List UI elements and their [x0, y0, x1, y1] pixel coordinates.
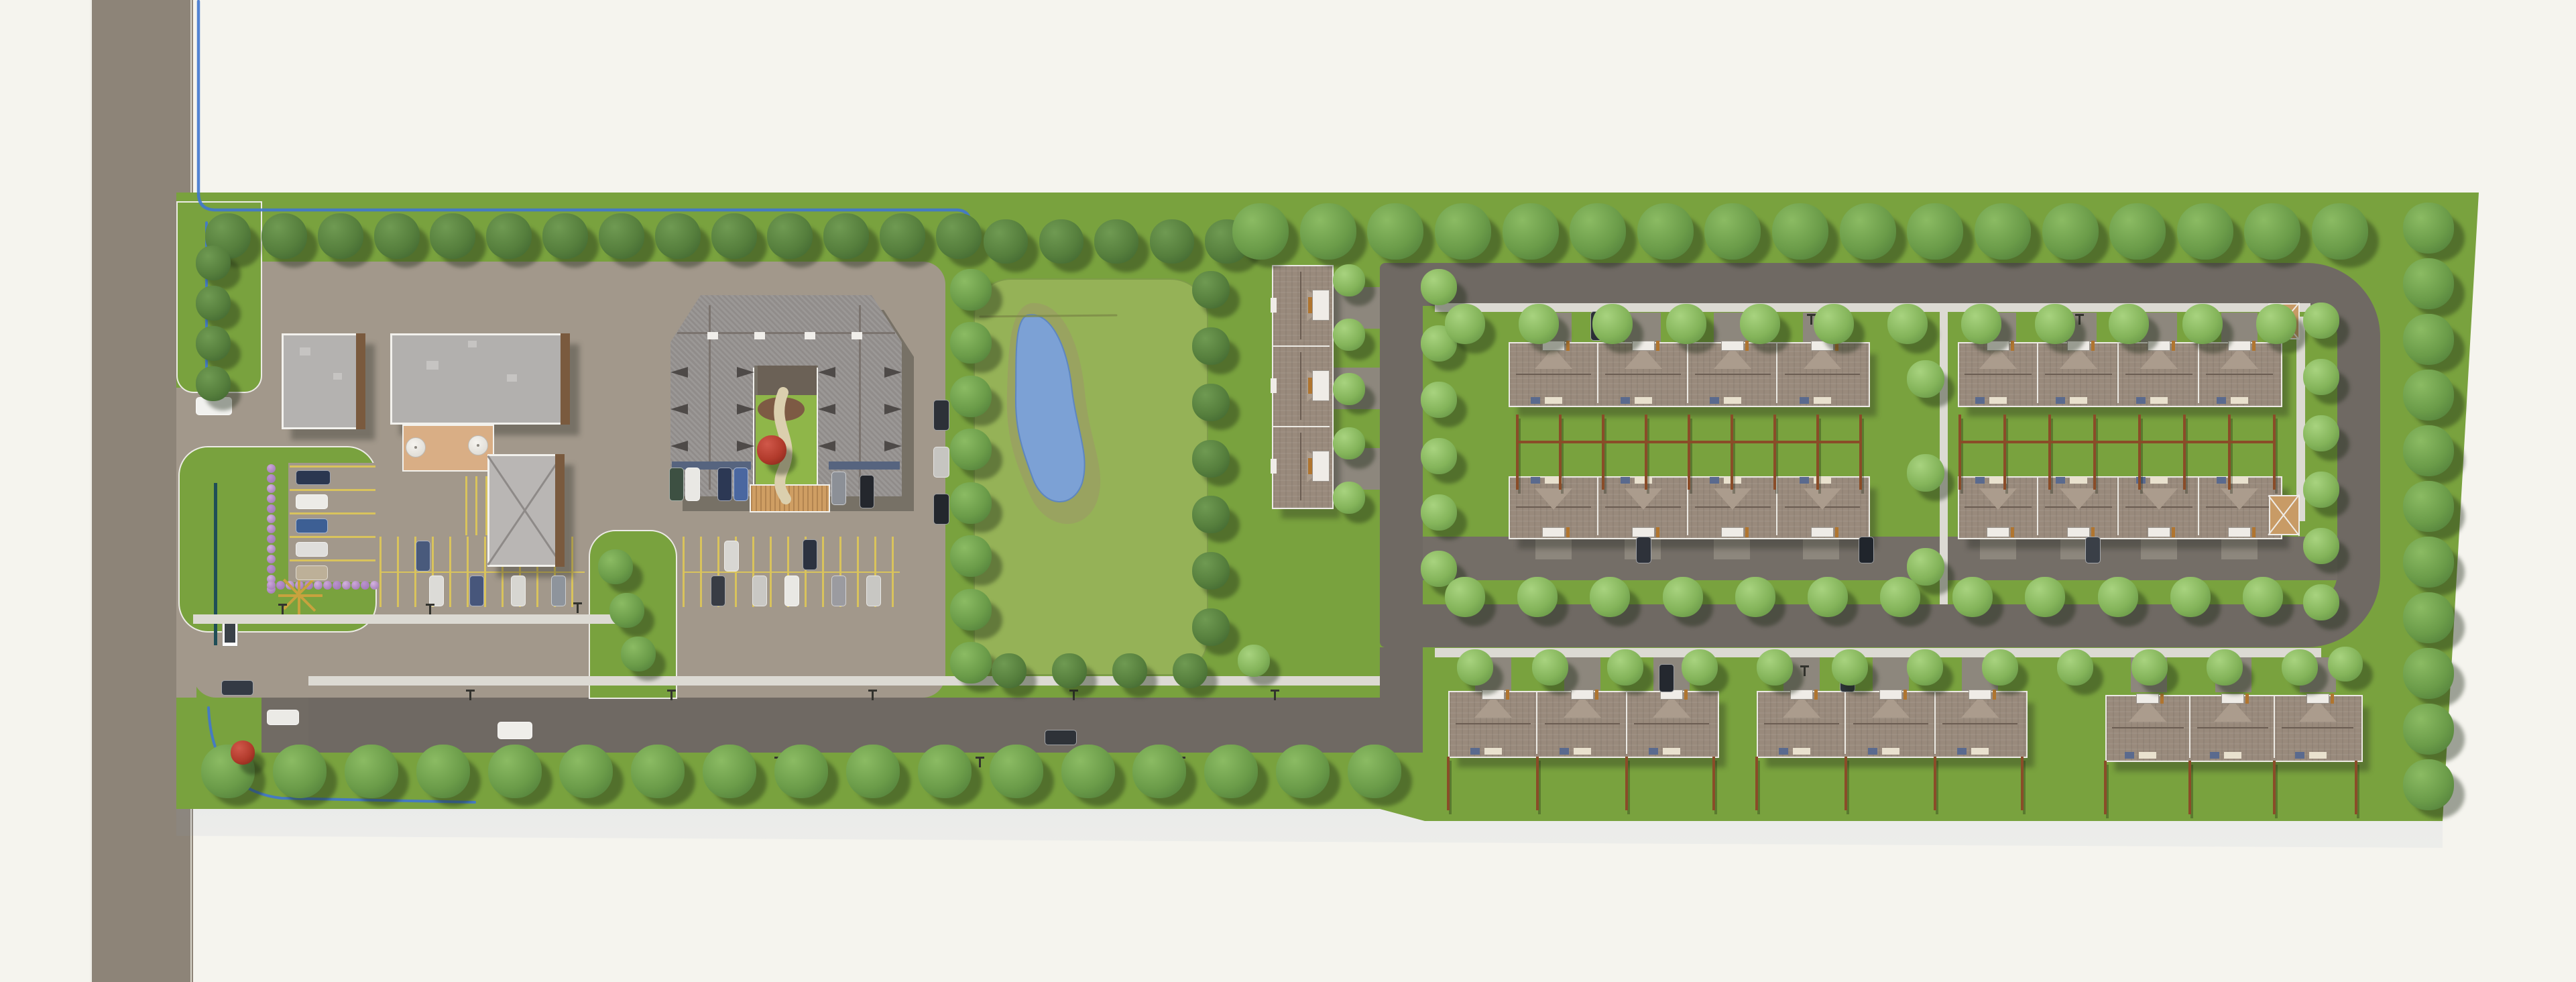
south-stalls-car-b6: [831, 576, 846, 606]
north-boundary-trees-east-tree: [1772, 203, 1828, 260]
south-boundary-trees-tree: [416, 745, 470, 798]
north-boundary-trees-west-tree: [711, 213, 757, 259]
south-street-trees-tree: [1457, 649, 1493, 686]
basin-east-trees-tree: [1192, 496, 1230, 533]
east-boundary-trees-tree: [2403, 592, 2454, 643]
north-boundary-trees-east-tree: [1435, 203, 1491, 260]
south-stalls-car-b4: [752, 576, 767, 606]
east-boundary-trees-tree: [2403, 258, 2454, 309]
entry-red-shrub: [231, 741, 255, 765]
south-stalls-car-b1: [724, 541, 739, 571]
east-loop-road-trees-tree: [2303, 415, 2339, 451]
east-boundary-trees-tree: [2403, 759, 2454, 810]
north-boundary-trees-east-tree: [1300, 203, 1356, 260]
car-windshield: [2086, 537, 2100, 541]
north-boundary-trees-west-tree: [655, 213, 701, 259]
loop-west-road-trees-tree: [1421, 438, 1457, 474]
south-street-trees-tree: [2057, 649, 2093, 686]
north-boundary-trees-west-tree: [880, 213, 925, 259]
south-boundary-trees-tree: [1276, 745, 1330, 798]
car-windshield: [934, 494, 949, 499]
light-pole-arm: [466, 690, 475, 692]
light-pole-arm: [426, 604, 434, 606]
east-parallel-car-2: [933, 447, 949, 478]
lot-peninsula-trees-tree: [609, 593, 644, 628]
north-boundary-trees-east-tree: [1503, 203, 1559, 260]
pond-corner-tree: [1238, 645, 1270, 677]
south-street-trees-tree: [2131, 649, 2168, 686]
north-boundary-trees-west-tree: [261, 213, 307, 259]
basin-west-trees-tree: [950, 322, 992, 364]
basin-south-trees-tree: [1173, 653, 1208, 688]
east-boundary-trees-tree: [2403, 481, 2454, 532]
east-loop-road-trees-tree: [2303, 359, 2339, 395]
car-windshield: [725, 541, 738, 546]
lot-peninsula-trees-tree: [598, 549, 633, 584]
car-windshield: [512, 576, 525, 581]
car-windshield: [470, 576, 483, 581]
west-island-trees-tree: [196, 286, 231, 321]
south-street-trees-tree: [1982, 649, 2018, 686]
island-stall-truck: [296, 470, 331, 485]
north-boundary-trees-mid-tree: [984, 219, 1028, 264]
east-parallel-car-3: [933, 494, 949, 525]
alley-street-trees-tree: [1663, 577, 1703, 617]
courtyard-path-svg: [0, 0, 2576, 982]
south-boundary-trees-tree: [1132, 745, 1186, 798]
car-windshield: [753, 576, 766, 581]
light-pole-arm: [278, 604, 287, 606]
car-windshield: [430, 576, 443, 581]
north-boundary-trees-west-tree: [936, 213, 982, 259]
alley-street-trees-tree: [1590, 577, 1630, 617]
north-boundary-trees-west-tree: [823, 213, 869, 259]
north-boundary-trees-west-tree: [430, 213, 475, 259]
east-loop-road-trees-tree: [2303, 472, 2339, 508]
north-boundary-trees-east-tree: [1570, 203, 1626, 260]
south-stalls-car-b3: [711, 576, 725, 606]
north-street-trees-tree: [2182, 304, 2223, 344]
center-townhome-yard-trees-tree: [1333, 373, 1365, 405]
car-windshield: [718, 468, 731, 474]
clubhouse-front-car-3: [717, 468, 732, 501]
cluster-gap-trees-tree: [1907, 454, 1944, 492]
lot-peninsula-trees-tree: [621, 637, 656, 671]
alley-street-trees-tree: [1880, 577, 1920, 617]
north-street-trees-tree: [2256, 304, 2296, 344]
east-loop-road-trees-tree: [2303, 528, 2339, 564]
east-parallel-car-1: [933, 400, 949, 431]
courtyard-red-maple: [757, 435, 786, 465]
car-on-apron: [267, 710, 299, 725]
south-stalls-car-a1: [416, 541, 430, 571]
south-stalls-car-a3: [469, 576, 484, 606]
center-townhome-yard-trees-tree: [1333, 264, 1365, 296]
loop-west-road-trees-tree: [1421, 494, 1457, 531]
car-windshield: [734, 468, 748, 474]
loop-corner-tree: [2328, 647, 2363, 681]
south-boundary-trees-tree: [559, 745, 613, 798]
alley-street-trees-tree: [2098, 577, 2138, 617]
loop-west-road-trees-tree: [1421, 382, 1457, 418]
alley-street-trees-tree: [2243, 577, 2283, 617]
north-boundary-trees-west-tree: [374, 213, 420, 259]
east-boundary-trees-tree: [2403, 704, 2454, 755]
island-stall-car-4: [296, 542, 328, 557]
east-boundary-trees-tree: [2403, 648, 2454, 699]
cluster-gap-trees-tree: [1907, 360, 1944, 398]
van-on-main-road: [497, 722, 532, 739]
basin-south-trees-tree: [1052, 653, 1087, 688]
south-boundary-trees-tree: [774, 745, 828, 798]
alley-street-trees-tree: [1808, 577, 1848, 617]
car-windshield: [552, 576, 565, 581]
clubhouse-front-car-4: [734, 468, 748, 501]
south-boundary-trees-tree: [1061, 745, 1115, 798]
car-near-entrance: [221, 680, 253, 696]
east-loop-road-trees-tree: [2303, 303, 2339, 339]
north-boundary-trees-east-tree: [1840, 203, 1896, 260]
alley-street-trees-tree: [2025, 577, 2065, 617]
north-boundary-trees-west-tree: [542, 213, 588, 259]
car-windshield: [785, 576, 799, 581]
basin-west-trees-tree: [950, 429, 992, 470]
west-island-trees-tree: [196, 245, 231, 280]
north-street-trees-tree: [1887, 304, 1928, 344]
north-boundary-trees-east-tree: [2042, 203, 2099, 260]
south-street-trees-tree: [2207, 649, 2243, 686]
car-windshield: [1637, 537, 1651, 541]
south-row-driveway-car-1: [1659, 664, 1674, 692]
south-boundary-trees-tree: [846, 745, 900, 798]
south-boundary-trees-tree: [1348, 745, 1401, 798]
car-windshield: [934, 400, 949, 405]
east-boundary-trees-tree: [2403, 203, 2454, 254]
alley-street-trees-tree: [1517, 577, 1558, 617]
north-street-trees-tree: [1814, 304, 1854, 344]
car-windshield: [832, 472, 845, 478]
island-stall-car-5: [296, 565, 328, 580]
south-street-trees-tree: [1682, 649, 1718, 686]
basin-west-trees-tree: [950, 589, 992, 631]
alley-street-trees-tree: [1952, 577, 1993, 617]
alley-street-trees-tree: [1735, 577, 1775, 617]
north-street-trees-tree: [2109, 304, 2149, 344]
center-townhome-yard-trees-tree: [1333, 319, 1365, 351]
basin-east-trees-tree: [1192, 384, 1230, 421]
basin-west-trees-tree: [950, 482, 992, 524]
south-street-trees-tree: [1607, 649, 1643, 686]
car-windshield: [1659, 665, 1674, 669]
car-windshield: [711, 576, 725, 581]
loop-west-road-trees-tree: [1421, 269, 1457, 305]
east-boundary-trees-tree: [2403, 314, 2454, 365]
light-pole-arm: [2075, 314, 2084, 316]
car-windshield: [934, 447, 949, 452]
east-loop-road-trees-tree: [2303, 584, 2339, 620]
light-pole-arm: [976, 757, 984, 759]
east-boundary-trees-tree: [2403, 425, 2454, 476]
basin-east-trees-tree: [1192, 327, 1230, 365]
basin-east-trees-tree: [1192, 552, 1230, 590]
basin-east-trees-tree: [1192, 440, 1230, 478]
north-boundary-trees-mid-tree: [1039, 219, 1084, 264]
south-boundary-trees-tree: [990, 745, 1043, 798]
car-windshield: [670, 468, 683, 474]
south-boundary-trees-tree: [273, 745, 327, 798]
south-street-trees-tree: [1832, 649, 1868, 686]
alley-car-2: [1859, 537, 1874, 563]
north-boundary-trees-mid-tree: [1094, 219, 1138, 264]
south-boundary-trees-tree: [631, 745, 685, 798]
north-street-trees-tree: [1519, 304, 1559, 344]
car-windshield: [1859, 537, 1873, 541]
alley-street-trees-tree: [1445, 577, 1485, 617]
south-stalls-car-b2: [803, 539, 817, 570]
car-windshield: [860, 476, 874, 481]
north-boundary-trees-west-tree: [318, 213, 363, 259]
basin-west-trees-tree: [950, 376, 992, 417]
south-street-trees-tree: [1907, 649, 1943, 686]
north-boundary-trees-west-tree: [767, 213, 813, 259]
car-windshield: [832, 576, 845, 581]
south-stalls-car-a4: [511, 576, 526, 606]
south-street-trees-tree: [2282, 649, 2318, 686]
clubhouse-front-car-1: [669, 468, 684, 501]
light-pole-arm: [573, 602, 582, 604]
basin-east-trees-tree: [1192, 608, 1230, 646]
south-street-trees-tree: [1757, 649, 1793, 686]
alley-car-1: [1636, 537, 1651, 563]
light-pole-arm: [667, 690, 676, 692]
north-boundary-trees-east-tree: [2244, 203, 2300, 260]
north-boundary-trees-east-tree: [1975, 203, 2031, 260]
clubhouse-front-car-2: [685, 468, 700, 501]
basin-south-trees-tree: [992, 653, 1027, 688]
north-boundary-trees-mid-tree: [1150, 219, 1194, 264]
north-boundary-trees-east-tree: [1637, 203, 1694, 260]
site-plan-canvas: [0, 0, 2576, 982]
north-boundary-trees-east-tree: [1704, 203, 1761, 260]
north-boundary-trees-west-tree: [599, 213, 644, 259]
basin-east-trees-tree: [1192, 271, 1230, 309]
south-street-trees-tree: [1532, 649, 1568, 686]
basin-west-trees-tree: [950, 535, 992, 577]
clubhouse-front-car-6: [860, 475, 874, 508]
car-windshield: [867, 576, 880, 581]
north-boundary-trees-east-tree: [2177, 203, 2233, 260]
basin-west-trees-tree: [950, 269, 992, 311]
basin-south-trees-tree: [1112, 653, 1147, 688]
east-boundary-trees-tree: [2403, 370, 2454, 421]
alley-car-3: [2085, 537, 2101, 563]
north-boundary-trees-west-tree: [486, 213, 532, 259]
north-street-trees-tree: [1666, 304, 1706, 344]
north-street-trees-tree: [1740, 304, 1780, 344]
south-stalls-car-b7: [866, 576, 881, 606]
south-boundary-trees-tree: [488, 745, 542, 798]
south-boundary-trees-tree: [1204, 745, 1258, 798]
island-stall-car-2: [296, 494, 328, 509]
north-boundary-trees-east-tree: [1367, 203, 1423, 260]
south-stalls-car-b5: [784, 576, 799, 606]
north-street-trees-tree: [2035, 304, 2075, 344]
north-boundary-trees-east-tree: [1232, 203, 1289, 260]
car-windshield: [686, 468, 699, 474]
north-boundary-trees-east-tree: [2109, 203, 2166, 260]
light-pole-arm: [868, 690, 877, 692]
island-stall-car-3: [296, 519, 328, 533]
south-boundary-trees-tree: [918, 745, 972, 798]
car-windshield: [416, 541, 430, 546]
alley-street-trees-tree: [2170, 577, 2211, 617]
clubhouse-front-car-5: [831, 472, 846, 505]
west-island-trees-tree: [196, 326, 231, 361]
south-boundary-trees-tree: [703, 745, 756, 798]
center-townhome-yard-trees-tree: [1333, 482, 1365, 514]
south-stalls-car-a2: [429, 576, 444, 606]
north-street-trees-tree: [1961, 304, 2001, 344]
east-boundary-trees-tree: [2403, 537, 2454, 588]
light-pole-arm: [1271, 690, 1279, 692]
cluster-gap-trees-tree: [1907, 548, 1944, 586]
south-stalls-car-a5: [551, 576, 566, 606]
basin-west-trees-tree: [950, 642, 992, 684]
north-street-trees-tree: [1445, 304, 1485, 344]
center-townhome-yard-trees-tree: [1333, 427, 1365, 459]
north-street-trees-tree: [1592, 304, 1633, 344]
west-island-trees-tree: [196, 366, 231, 401]
north-boundary-trees-east-tree: [1907, 203, 1963, 260]
north-boundary-trees-east-tree: [2312, 203, 2368, 260]
car-windshield: [803, 540, 817, 545]
light-pole-arm: [1800, 665, 1809, 667]
light-pole-arm: [1807, 314, 1816, 316]
south-boundary-trees-tree: [345, 745, 398, 798]
car-on-main-road-east: [1045, 730, 1077, 745]
